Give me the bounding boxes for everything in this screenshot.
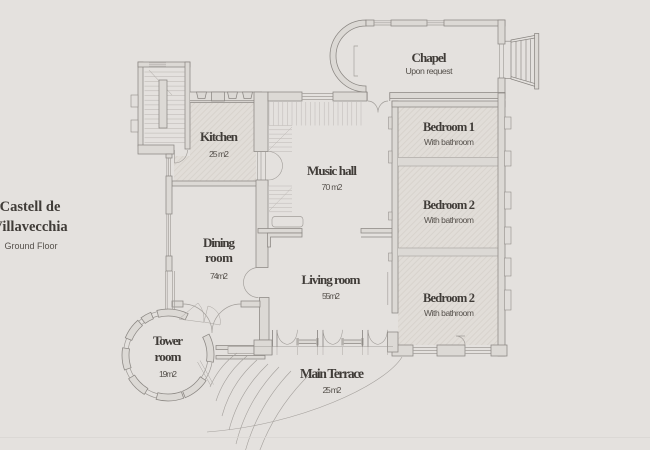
svg-text:Music hall: Music hall xyxy=(307,163,357,178)
svg-text:Ground Floor: Ground Floor xyxy=(4,241,57,251)
svg-text:Upon request: Upon request xyxy=(406,66,454,76)
svg-text:Tower: Tower xyxy=(153,333,183,348)
svg-text:Bedroom 2: Bedroom 2 xyxy=(423,198,475,212)
svg-text:room: room xyxy=(155,349,182,364)
svg-text:room: room xyxy=(205,250,233,265)
svg-text:25 m2: 25 m2 xyxy=(209,149,229,159)
svg-text:Kitchen: Kitchen xyxy=(200,129,239,144)
svg-text:Bedroom 1: Bedroom 1 xyxy=(423,120,475,134)
svg-text:Castell de: Castell de xyxy=(0,199,61,215)
svg-text:With bathroom: With bathroom xyxy=(424,308,474,318)
svg-text:Chapel: Chapel xyxy=(412,50,447,65)
svg-text:With bathroom: With bathroom xyxy=(424,137,474,147)
svg-text:55m2: 55m2 xyxy=(322,291,340,301)
svg-text:74m2: 74m2 xyxy=(210,271,228,281)
svg-text:Villavecchia: Villavecchia xyxy=(0,219,68,235)
svg-text:25 m2: 25 m2 xyxy=(323,385,342,395)
svg-text:With bathroom: With bathroom xyxy=(424,215,474,225)
svg-text:19m2: 19m2 xyxy=(159,369,177,379)
svg-text:Bedroom 2: Bedroom 2 xyxy=(423,291,475,305)
svg-text:Living room: Living room xyxy=(302,272,361,287)
svg-text:Main Terrace: Main Terrace xyxy=(300,366,364,381)
svg-text:Dining: Dining xyxy=(203,235,236,250)
svg-text:70 m2: 70 m2 xyxy=(322,182,343,192)
